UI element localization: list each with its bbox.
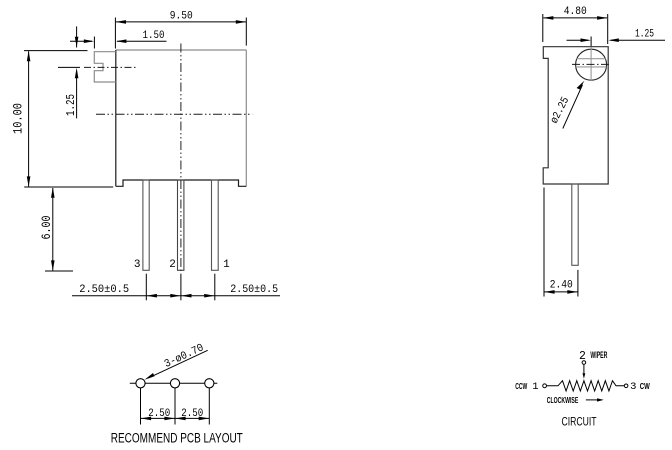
svg-text:9.50: 9.50: [170, 10, 193, 22]
svg-text:2.50±0.5: 2.50±0.5: [79, 284, 129, 296]
svg-text:RECOMMEND PCB LAYOUT: RECOMMEND PCB LAYOUT: [111, 431, 243, 446]
svg-text:2: 2: [579, 350, 586, 363]
svg-text:WIPER: WIPER: [590, 350, 607, 360]
svg-text:CIRCUIT: CIRCUIT: [562, 415, 597, 429]
svg-text:CCW: CCW: [515, 382, 527, 391]
svg-text:6.00: 6.00: [39, 216, 54, 240]
svg-text:CLOCKWISE: CLOCKWISE: [547, 395, 579, 405]
svg-text:2.50: 2.50: [148, 408, 170, 420]
svg-text:1: 1: [223, 259, 230, 271]
svg-text:3: 3: [134, 259, 141, 271]
svg-text:1.25: 1.25: [635, 28, 654, 40]
svg-text:2.50±0.5: 2.50±0.5: [230, 284, 278, 296]
svg-text:CW: CW: [640, 382, 650, 391]
svg-text:10.00: 10.00: [10, 103, 25, 134]
svg-text:2.40: 2.40: [550, 280, 573, 292]
svg-text:2.50: 2.50: [181, 408, 203, 420]
svg-text:1.25: 1.25: [64, 94, 78, 116]
svg-text:3: 3: [630, 381, 636, 393]
svg-text:2: 2: [169, 259, 176, 271]
svg-text:4.80: 4.80: [564, 6, 587, 18]
svg-text:1.50: 1.50: [143, 30, 165, 42]
svg-text:1: 1: [532, 381, 538, 393]
